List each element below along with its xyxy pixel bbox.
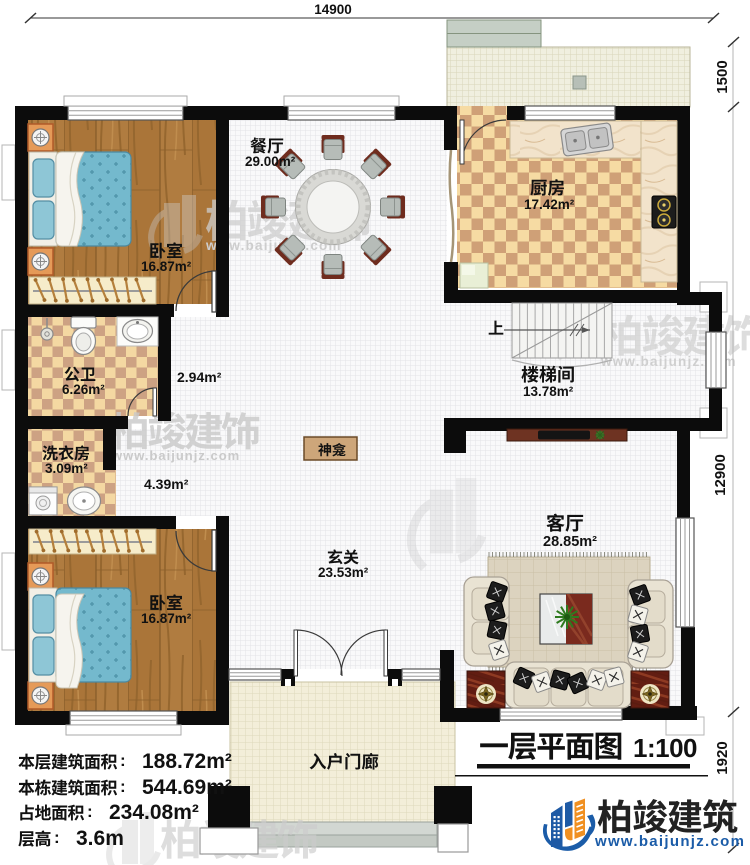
svg-text:3.09m²: 3.09m² — [45, 461, 88, 476]
svg-text:16.87m²: 16.87m² — [141, 259, 192, 274]
svg-text:188.72m²: 188.72m² — [142, 750, 232, 773]
svg-text:28.85m²: 28.85m² — [543, 534, 597, 550]
svg-text:14900: 14900 — [314, 2, 352, 17]
svg-text:2.94m²: 2.94m² — [177, 369, 222, 385]
svg-text:4.39m²: 4.39m² — [144, 476, 189, 492]
svg-text::: : — [120, 777, 126, 796]
svg-text:17.42m²: 17.42m² — [524, 197, 575, 212]
svg-text:1920: 1920 — [714, 741, 731, 774]
svg-text:16.87m²: 16.87m² — [141, 611, 192, 626]
svg-text:1:100: 1:100 — [633, 733, 697, 763]
svg-text:6.26m²: 6.26m² — [62, 382, 105, 397]
svg-text:544.69m²: 544.69m² — [142, 776, 232, 799]
svg-text:www.baijunjz.com: www.baijunjz.com — [111, 448, 240, 463]
svg-text::: : — [120, 751, 126, 770]
svg-text::: : — [54, 828, 60, 847]
svg-text:12900: 12900 — [712, 454, 729, 496]
svg-text:13.78m²: 13.78m² — [523, 384, 574, 399]
svg-text:234.08m²: 234.08m² — [109, 801, 199, 824]
svg-text:23.53m²: 23.53m² — [318, 565, 369, 580]
svg-text:29.00m²: 29.00m² — [245, 154, 296, 169]
svg-text:1500: 1500 — [714, 60, 731, 93]
svg-text:www.baijunjz.com: www.baijunjz.com — [594, 833, 745, 850]
svg-text::: : — [87, 802, 93, 821]
svg-text:3.6m: 3.6m — [76, 827, 124, 850]
